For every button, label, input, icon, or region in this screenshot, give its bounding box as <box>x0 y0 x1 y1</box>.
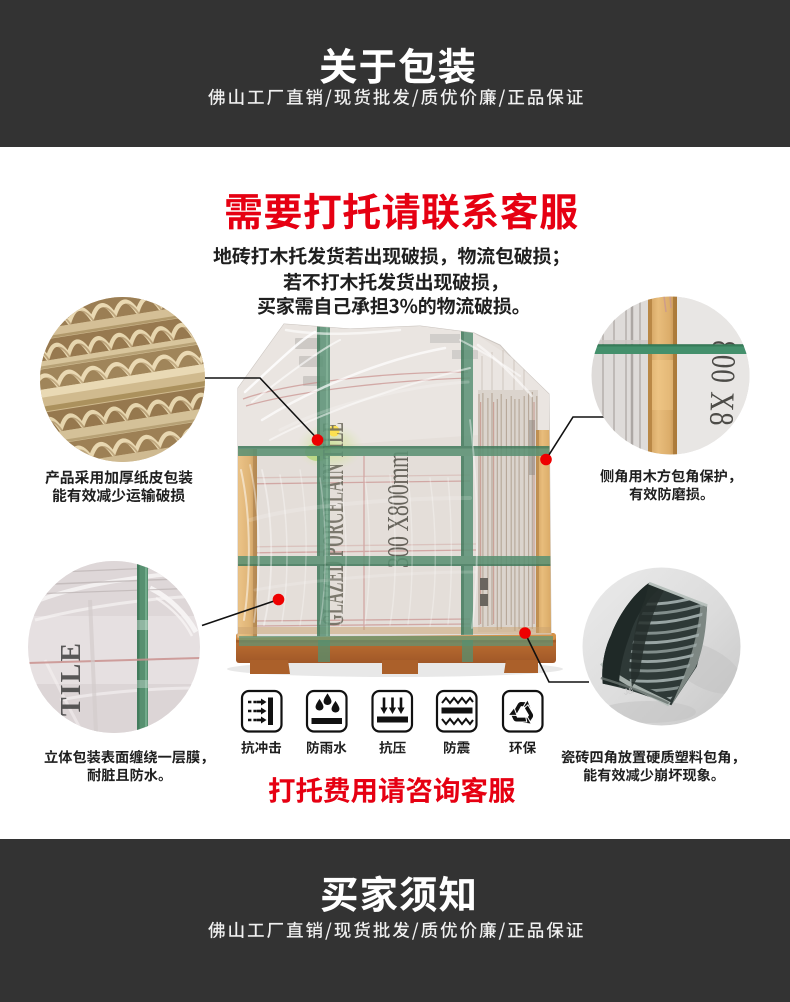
svg-text:TILE: TILE <box>56 641 87 716</box>
svg-text:300 X800mm: 300 X800mm <box>380 451 415 568</box>
